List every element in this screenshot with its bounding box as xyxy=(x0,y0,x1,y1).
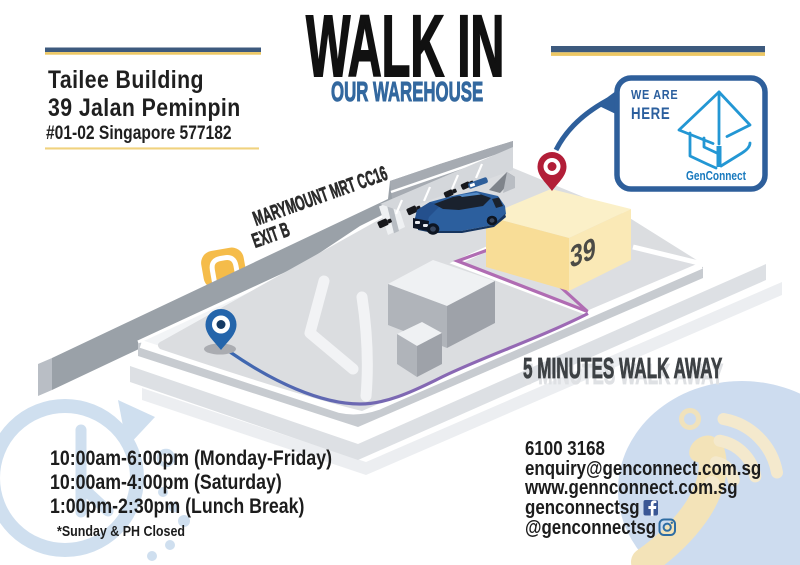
svg-text:GenConnect: GenConnect xyxy=(686,169,747,183)
